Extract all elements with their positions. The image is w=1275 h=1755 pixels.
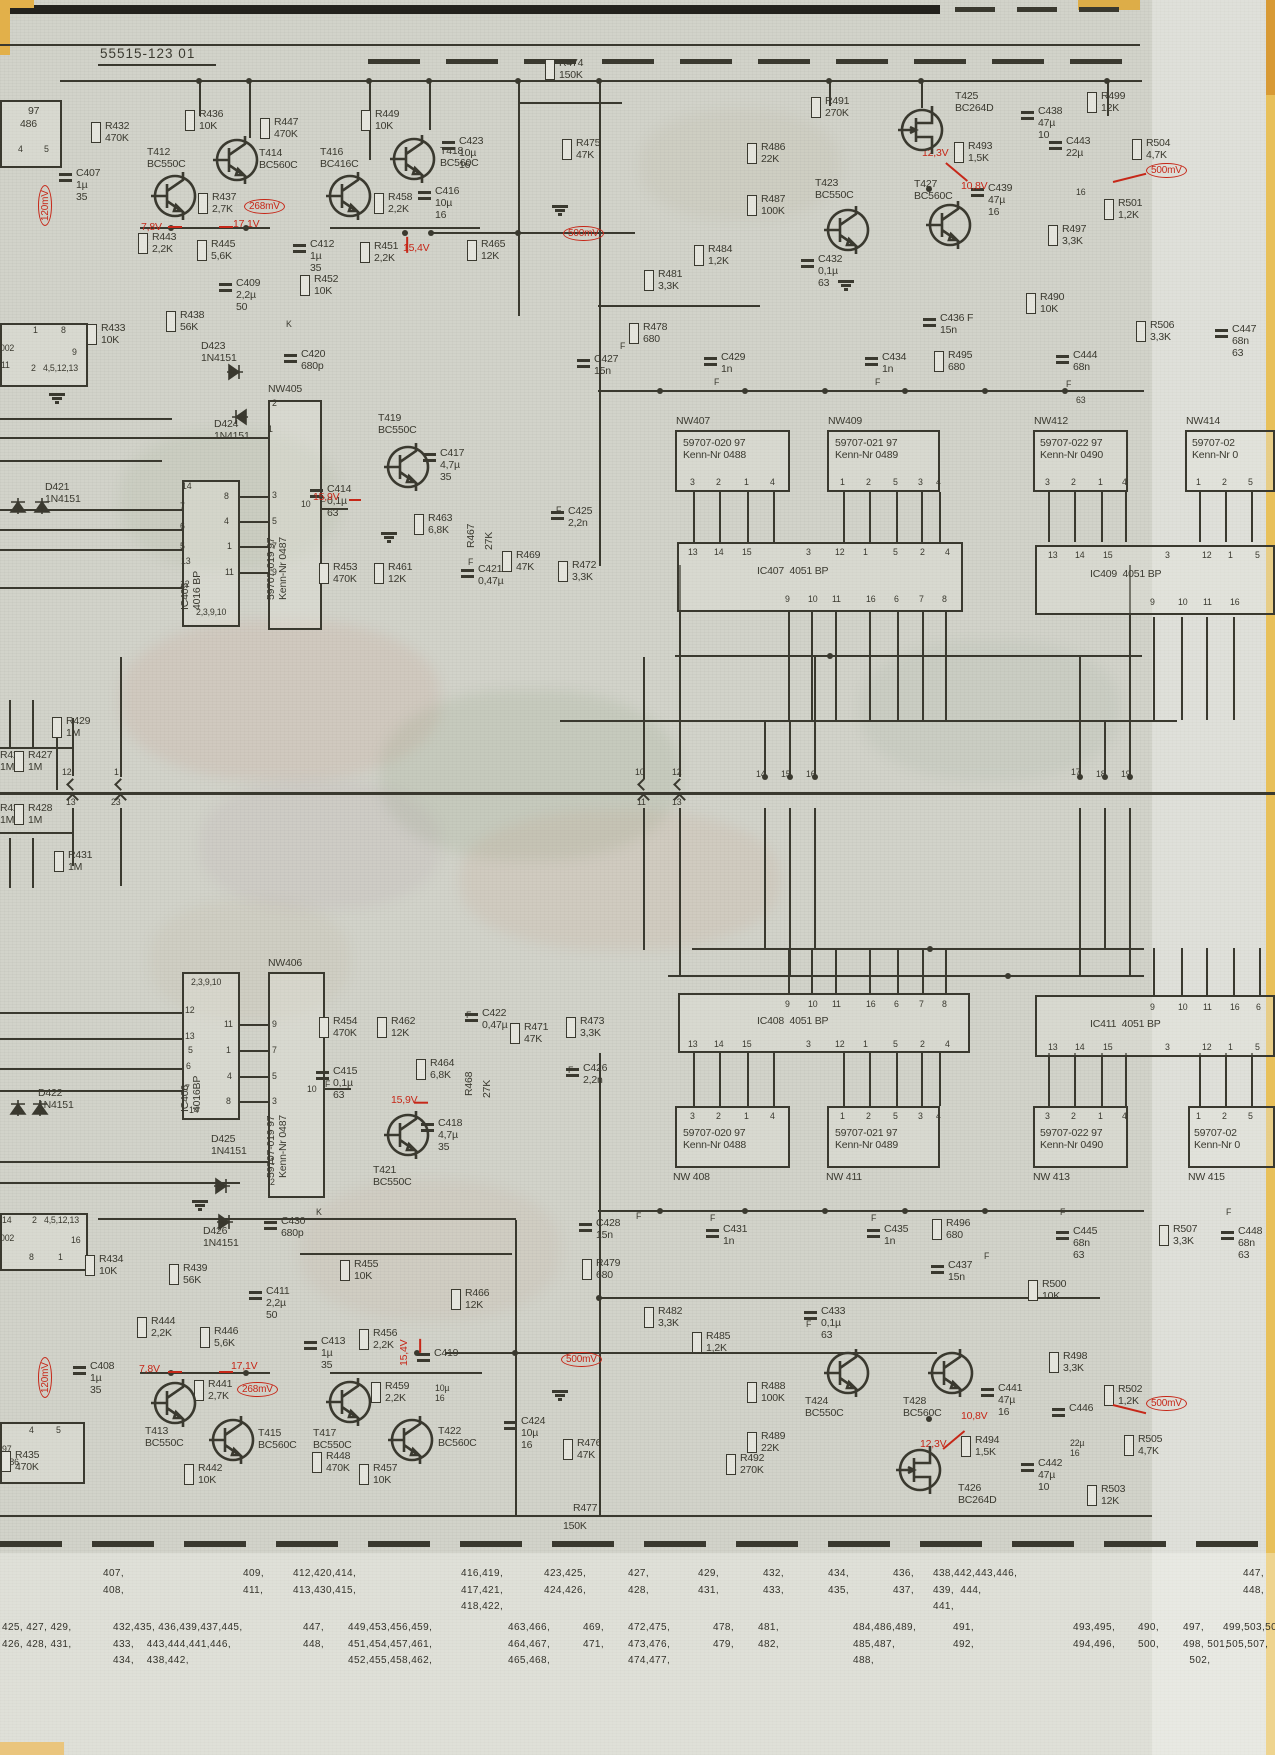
component-label: C409 2,2µ 50 xyxy=(236,278,260,313)
pin-number: 5 xyxy=(1255,1043,1260,1053)
component-label: 8 xyxy=(226,1097,231,1107)
resistor-symbol xyxy=(563,1439,573,1460)
component-label: IC409 4051 BP xyxy=(1090,569,1161,581)
legend-bottom-col4-row2: 465,468, xyxy=(508,1653,550,1670)
pin-number: 1 xyxy=(1098,478,1103,488)
component-label: F xyxy=(871,1214,876,1224)
wire xyxy=(1104,808,1106,950)
ground-symbol xyxy=(844,288,848,291)
voltage-arrow xyxy=(168,226,182,228)
legend-top-col1-row1: 411, xyxy=(243,1583,263,1600)
component-label: 27K xyxy=(484,532,498,550)
wire xyxy=(598,1297,1100,1299)
resistor-symbol xyxy=(197,240,207,261)
wire xyxy=(0,549,182,551)
legend-bottom-col3-row1: 451,454,457,461, xyxy=(348,1637,432,1654)
capacitor-symbol xyxy=(461,575,474,578)
junction-dot xyxy=(1005,973,1011,979)
component-label: R494 1,5K xyxy=(975,1435,999,1459)
capacitor-symbol xyxy=(931,1265,944,1268)
component-label: 4 xyxy=(227,1072,232,1082)
component-label: C418 4,7µ 35 xyxy=(438,1118,462,1153)
capacitor-symbol xyxy=(865,363,878,366)
pin-wire xyxy=(939,1053,941,1106)
component-label: R491 270K xyxy=(825,96,849,120)
component-label: C436 F 15n xyxy=(940,313,973,337)
component-label: F xyxy=(620,342,625,352)
pin-number: 4 xyxy=(936,1112,941,1122)
component-label: 12 xyxy=(672,768,681,778)
pin-number: 2 xyxy=(1222,1112,1227,1122)
ground-symbol xyxy=(49,393,65,396)
resistor-symbol xyxy=(692,1332,702,1353)
diode-symbol xyxy=(8,496,28,516)
wire xyxy=(0,792,1275,795)
wire xyxy=(692,948,1144,950)
component-label: R451 2,2K xyxy=(374,241,398,265)
wire xyxy=(32,838,34,888)
diode-symbol xyxy=(230,407,250,427)
transistor-symbol-T417 xyxy=(322,1374,378,1430)
pin-number: 1 xyxy=(744,478,749,488)
resistor-symbol xyxy=(374,563,384,584)
capacitor-symbol xyxy=(579,1223,592,1226)
component-label: 2 xyxy=(270,1178,275,1188)
legend-top-col10-row0: 438,442,443,446, xyxy=(933,1566,1017,1583)
junction-dot xyxy=(657,1208,663,1214)
voltage-arrow xyxy=(406,237,408,253)
capacitor-symbol xyxy=(1052,1414,1065,1417)
resistor-symbol xyxy=(1,1451,11,1472)
component-label: R506 3,3K xyxy=(1150,320,1174,344)
pin-number: 1 xyxy=(863,1040,868,1050)
ground-symbol xyxy=(841,284,851,287)
legend-top-col10-row2: 441, xyxy=(933,1599,954,1616)
capacitor-symbol xyxy=(706,1235,719,1238)
voltage-arrow xyxy=(1113,173,1146,183)
legend-bottom-col3-row0: 449,453,456,459, xyxy=(348,1620,432,1637)
component-label: 5 xyxy=(272,1072,277,1082)
component-label: 500mV xyxy=(561,1352,602,1367)
component-label: R453 470K xyxy=(333,562,357,586)
pin-number: 7 xyxy=(919,595,924,605)
transistor-symbol-T422 xyxy=(384,1412,440,1468)
legend-bottom-col13-row0: 497, xyxy=(1183,1620,1204,1637)
component-label: 14 xyxy=(2,1216,11,1226)
pin-number: 3 xyxy=(918,478,923,488)
resistor-symbol xyxy=(414,514,424,535)
junction-dot xyxy=(596,1295,602,1301)
component-label: F xyxy=(1060,1208,1065,1218)
legend-top-col0-row1: 408, xyxy=(103,1583,124,1600)
component-label: 486 xyxy=(20,119,37,131)
legend-bottom-col9-row0: 484,486,489, xyxy=(853,1620,916,1637)
component-label: 4 xyxy=(224,517,229,527)
resistor-symbol xyxy=(360,242,370,263)
resistor-symbol xyxy=(1048,225,1058,246)
component-label: C437 15n xyxy=(948,1260,972,1284)
pin-number: 11 xyxy=(832,595,841,605)
wire xyxy=(0,1182,240,1184)
component-label: D425 1N4151 xyxy=(211,1134,247,1158)
component-label: 7,8V xyxy=(139,1364,160,1376)
component-label: R501 1,2K xyxy=(1118,198,1142,222)
pin-number: 5 xyxy=(893,1040,898,1050)
pin-wire xyxy=(1251,1053,1253,1106)
capacitor-symbol xyxy=(867,1229,880,1232)
component-label: R504 4,7K xyxy=(1146,138,1170,162)
wire xyxy=(330,227,480,229)
component-label: C433 0,1µ 63 xyxy=(821,1306,845,1341)
legend-bottom-col5-row1: 471, xyxy=(583,1637,604,1654)
component-label: F xyxy=(806,1320,811,1330)
component-label: C432 0,1µ 63 xyxy=(818,254,842,289)
capacitor-symbol xyxy=(1021,111,1034,114)
component-label: R463 6,8K xyxy=(428,513,452,537)
transistor-symbol-T419 xyxy=(380,439,436,495)
component-label: 59707-022 97 Kenn-Nr 0490 xyxy=(1040,438,1103,462)
capacitor-symbol xyxy=(442,147,455,150)
legend-top-col5-row1: 428, xyxy=(628,1583,649,1600)
legend-bottom-col4-row0: 463,466, xyxy=(508,1620,550,1637)
component-label: R435 470K xyxy=(15,1450,39,1474)
component-label: IC406 4016BP xyxy=(180,1076,194,1112)
capacitor-symbol xyxy=(1052,1408,1065,1411)
component-label: 27K xyxy=(482,1080,496,1098)
component-label: 10 xyxy=(307,1085,316,1095)
junction-dot xyxy=(1104,78,1110,84)
component-label: R503 12K xyxy=(1101,1484,1125,1508)
ground-symbol xyxy=(555,1394,565,1397)
component-label: 4,5,12,13 xyxy=(43,364,78,374)
component-label: 59707-019 97 Kenn-Nr 0487 xyxy=(266,537,280,600)
pin-wire xyxy=(921,492,923,542)
component-label: 7 xyxy=(272,1046,277,1056)
pin-wire xyxy=(869,1053,871,1106)
component-label: R441 2,7K xyxy=(208,1379,232,1403)
legend-bottom-col9-row2: 488, xyxy=(853,1653,874,1670)
pin-number: 12 xyxy=(1202,551,1211,561)
capacitor-symbol xyxy=(504,1427,517,1430)
component-label: R476 47K xyxy=(577,1438,601,1462)
pin-number: 3 xyxy=(1165,1043,1170,1053)
wire xyxy=(675,655,1142,657)
pin-wire xyxy=(811,612,813,720)
component-label: R437 2,7K xyxy=(212,192,236,216)
component-label: 9 xyxy=(72,348,77,358)
resistor-symbol xyxy=(138,233,148,254)
component-label: 500mV xyxy=(1146,163,1187,178)
pin-number: 11 xyxy=(1203,1003,1212,1013)
pin-number: 2 xyxy=(920,1040,925,1050)
pin-number: 10 xyxy=(1178,598,1187,608)
junction-dot xyxy=(927,946,933,952)
wire xyxy=(32,700,34,748)
pin-wire xyxy=(843,492,845,542)
component-label: R469 47K xyxy=(516,550,540,574)
capacitor-symbol xyxy=(293,250,306,253)
legend-bottom-col9-row1: 485,487, xyxy=(853,1637,895,1654)
component-label: R464 6,8K xyxy=(430,1058,454,1082)
resistor-symbol xyxy=(52,717,62,738)
capacitor-symbol xyxy=(1056,361,1069,364)
pin-number: 1 xyxy=(744,1112,749,1122)
component-label: 5 xyxy=(44,145,49,155)
pin-number: 4 xyxy=(770,478,775,488)
wire xyxy=(598,305,760,307)
capacitor-symbol xyxy=(981,1388,994,1391)
resistor-symbol xyxy=(166,311,176,332)
capacitor-symbol xyxy=(801,265,814,268)
resistor-symbol xyxy=(184,1464,194,1485)
pin-wire xyxy=(1199,492,1201,542)
ground-symbol xyxy=(558,213,562,216)
component-label: R465 12K xyxy=(481,239,505,263)
junction-dot xyxy=(1102,774,1108,780)
wire xyxy=(120,657,122,777)
transistor-symbol-T427 xyxy=(922,197,978,253)
component-label: F xyxy=(710,1214,715,1224)
transistor-symbol-T415 xyxy=(205,1412,261,1468)
pin-wire xyxy=(1206,617,1208,720)
resistor-symbol xyxy=(169,1264,179,1285)
wire xyxy=(0,460,162,462)
component-label: C408 1µ 35 xyxy=(90,1361,114,1396)
wire xyxy=(0,1068,182,1070)
wire xyxy=(518,80,520,316)
ground-symbol xyxy=(55,401,59,404)
pin-number: 3 xyxy=(690,478,695,488)
voltage-arrow xyxy=(219,226,233,228)
component-label: R429 1M xyxy=(66,716,90,740)
resistor-symbol xyxy=(185,110,195,131)
component-label: R452 10K xyxy=(314,274,338,298)
wire xyxy=(518,102,622,104)
page-edge-mark xyxy=(0,0,34,8)
pin-wire xyxy=(1206,948,1208,995)
component-label: 59707-021 97 Kenn-Nr 0489 xyxy=(835,438,898,462)
legend-bottom-col12-row1: 500, xyxy=(1138,1637,1159,1654)
voltage-arrow xyxy=(349,499,361,501)
component-label: R461 12K xyxy=(388,562,412,586)
pin-number: 4 xyxy=(1122,1112,1127,1122)
pin-wire xyxy=(773,1053,775,1106)
component-label: F xyxy=(714,378,719,388)
capacitor-symbol xyxy=(73,1366,86,1369)
pin-number: 4 xyxy=(945,1040,950,1050)
junction-dot xyxy=(1127,774,1133,780)
component-label: 2 xyxy=(272,399,277,409)
wire xyxy=(764,808,766,950)
capacitor-symbol xyxy=(219,289,232,292)
component-label: R449 10K xyxy=(375,109,399,133)
pin-number: 12 xyxy=(835,1040,844,1050)
wire xyxy=(249,80,251,138)
component-label: F xyxy=(636,1212,641,1222)
resistor-symbol xyxy=(566,1017,576,1038)
resistor-symbol xyxy=(319,563,329,584)
capacitor-symbol xyxy=(1215,329,1228,332)
wire xyxy=(98,1218,516,1220)
component-label: T412 BC550C xyxy=(147,147,186,171)
pin-number: 14 xyxy=(714,548,723,558)
capacitor-symbol xyxy=(284,354,297,357)
pin-wire xyxy=(897,948,899,995)
resistor-symbol xyxy=(451,1289,461,1310)
capacitor-symbol xyxy=(417,1359,430,1362)
ground-symbol xyxy=(558,1398,562,1401)
junction-dot xyxy=(1062,388,1068,394)
pin-wire xyxy=(773,492,775,542)
legend-top-col11-row1: 448, xyxy=(1243,1583,1264,1600)
component-label: R498 3,3K xyxy=(1063,1351,1087,1375)
pin-number: 1 xyxy=(1098,1112,1103,1122)
transistor-symbol-T428 xyxy=(924,1345,980,1401)
component-label: R492 270K xyxy=(740,1453,764,1477)
component-label: C412 1µ 35 xyxy=(310,239,334,274)
wire xyxy=(0,1090,182,1092)
wire xyxy=(679,808,681,976)
legend-bottom-col8-row1: 482, xyxy=(758,1637,779,1654)
pin-wire xyxy=(945,948,947,995)
pin-wire xyxy=(869,612,871,720)
component-label: 1 xyxy=(114,768,119,778)
component-label: R454 470K xyxy=(333,1016,357,1040)
diode-symbol xyxy=(215,1212,235,1232)
component-label: 10 xyxy=(301,500,310,510)
resistor-symbol xyxy=(312,1452,322,1473)
capacitor-symbol xyxy=(1021,1463,1034,1466)
pin-number: 9 xyxy=(1150,1003,1155,1013)
bleed-ghost-artifact xyxy=(860,640,1120,780)
component-label: 5 xyxy=(188,1046,193,1056)
resistor-symbol xyxy=(644,270,654,291)
transistor-symbol-T424 xyxy=(820,1345,876,1401)
resistor-symbol xyxy=(1104,1385,1114,1406)
component-label: R434 10K xyxy=(99,1254,123,1278)
legend-bottom-col10-row0: 491, xyxy=(953,1620,974,1637)
component-label: 120mV xyxy=(38,185,52,226)
component-label: C443 22µ xyxy=(1066,136,1090,160)
component-label: R475 47K xyxy=(576,138,600,162)
component-label: IC408 4051 BP xyxy=(757,1016,828,1028)
pin-wire xyxy=(835,948,837,995)
pin-number: 8 xyxy=(942,1000,947,1010)
component-label: R466 12K xyxy=(465,1288,489,1312)
component-label: R473 3,3K xyxy=(580,1016,604,1040)
junction-dot xyxy=(196,78,202,84)
transistor-symbol-T418 xyxy=(386,131,442,187)
capacitor-symbol xyxy=(804,1311,817,1314)
component-label: R481 3,3K xyxy=(658,269,682,293)
component-label: 5 xyxy=(272,517,277,527)
component-label: R505 4,7K xyxy=(1138,1434,1162,1458)
pin-number: 7 xyxy=(919,1000,924,1010)
component-label: 2 xyxy=(31,364,36,374)
component-label: 59707-02 Kenn-Nr 0 xyxy=(1192,438,1238,462)
junction-dot xyxy=(366,78,372,84)
legend-bottom-col12-row0: 490, xyxy=(1138,1620,1159,1637)
component-label: C430 680p xyxy=(281,1216,305,1240)
component-label: 16 xyxy=(1076,188,1085,198)
capacitor-symbol xyxy=(73,1372,86,1375)
component-label: 13 xyxy=(185,1032,194,1042)
resistor-symbol xyxy=(137,1317,147,1338)
ground-symbol xyxy=(198,1208,202,1211)
diode-symbol xyxy=(30,1098,50,1118)
legend-bottom-col4-row1: 464,467, xyxy=(508,1637,550,1654)
legend-top-col4-row1: 424,426, xyxy=(544,1583,586,1600)
capacitor-symbol xyxy=(442,141,455,144)
component-label: 4 xyxy=(29,1426,34,1436)
wire xyxy=(0,587,182,589)
wire xyxy=(643,808,645,950)
junction-dot xyxy=(827,653,833,659)
capacitor-symbol xyxy=(1215,335,1228,338)
component-label: T423 BC550C xyxy=(815,178,854,202)
component-label: R486 22K xyxy=(761,142,785,166)
component-label: 12 xyxy=(62,768,71,778)
component-label: T416 BC416C xyxy=(320,147,359,171)
component-label: 22µ 16 xyxy=(1070,1439,1084,1459)
resistor-symbol xyxy=(1087,92,1097,113)
pin-number: 6 xyxy=(894,595,899,605)
component-label: 15,4V xyxy=(399,1340,413,1366)
pin-number: 9 xyxy=(785,1000,790,1010)
resistor-symbol xyxy=(954,142,964,163)
pin-wire xyxy=(1101,1053,1103,1106)
legend-top-col9-row1: 437, xyxy=(893,1583,914,1600)
junction-dot xyxy=(515,78,521,84)
component-label: R433 10K xyxy=(101,323,125,347)
pin-wire xyxy=(693,492,695,542)
component-label: R489 22K xyxy=(761,1431,785,1455)
pin-number: 1 xyxy=(1196,1112,1201,1122)
pin-number: 2 xyxy=(866,1112,871,1122)
capacitor-symbol xyxy=(316,1071,329,1074)
pin-number: 1 xyxy=(840,1112,845,1122)
wire xyxy=(240,1024,270,1026)
pin-number: 5 xyxy=(1248,1112,1253,1122)
legend-bottom-col6-row0: 472,475, xyxy=(628,1620,670,1637)
component-label: R482 3,3K xyxy=(658,1306,682,1330)
component-label: F xyxy=(984,1252,989,1262)
legend-top-col8-row0: 434, xyxy=(828,1566,849,1583)
pin-number: 5 xyxy=(1255,551,1260,561)
component-label: R458 2,2K xyxy=(388,192,412,216)
junction-dot xyxy=(512,1350,518,1356)
component-label: NW406 xyxy=(268,958,302,970)
junction-dot xyxy=(982,388,988,394)
pin-number: 14 xyxy=(1075,1043,1084,1053)
resistor-symbol xyxy=(1028,1280,1038,1301)
capacitor-symbol xyxy=(551,511,564,514)
component-label: R478 680 xyxy=(643,322,667,346)
wire xyxy=(560,720,1177,722)
capacitor-symbol xyxy=(1056,1237,1069,1240)
legend-top-col11-row0: 447, xyxy=(1243,1566,1264,1583)
resistor-symbol xyxy=(85,1255,95,1276)
wire xyxy=(56,732,58,790)
component-label: C429 1n xyxy=(721,352,745,376)
component-label: 15,9V xyxy=(391,1095,417,1107)
ground-symbol xyxy=(555,209,565,212)
component-label: F xyxy=(1226,1208,1231,1218)
pin-wire xyxy=(788,612,790,720)
pin-number: 13 xyxy=(1048,551,1057,561)
wire xyxy=(9,700,11,748)
junction-dot xyxy=(515,230,521,236)
